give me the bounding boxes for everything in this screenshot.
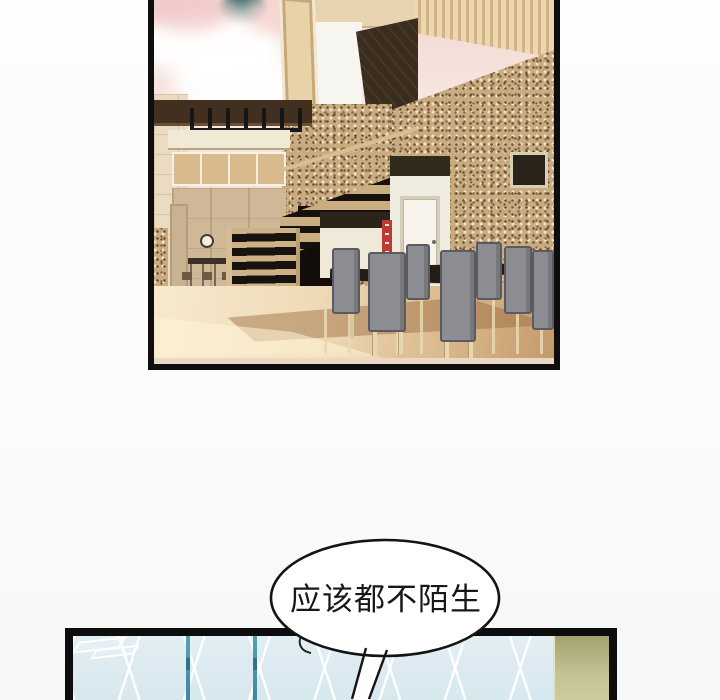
olive-wall: [553, 636, 609, 700]
door-wall-header: [390, 156, 450, 178]
chair-leg: [372, 332, 377, 356]
alcove-header: [168, 130, 290, 150]
chair-leg: [444, 342, 449, 358]
chair: [332, 248, 360, 314]
slatted-ceiling: [410, 0, 554, 58]
top-panel: [148, 0, 560, 370]
webtoon-page: 应该都不陌生: [0, 0, 720, 700]
chair: [476, 242, 502, 300]
balcony-railing: [190, 108, 302, 132]
alcove-window-band: [172, 152, 286, 186]
dark-paneled-wall: [356, 18, 418, 116]
chair-leg: [398, 332, 403, 354]
dark-window: [510, 152, 548, 188]
upper-wall: [312, 22, 362, 112]
door-knob: [432, 240, 436, 244]
chair: [504, 246, 532, 314]
rail-joint: [186, 658, 190, 670]
chair-leg: [468, 342, 473, 358]
wall-clock: [200, 234, 214, 248]
chair: [406, 244, 430, 300]
open-casement-window: [279, 0, 319, 116]
alcove-door: [170, 204, 188, 298]
chair: [368, 252, 406, 332]
chair: [532, 250, 554, 330]
chair: [440, 250, 476, 342]
speech-bubble-text: 应该都不陌生: [285, 580, 487, 620]
